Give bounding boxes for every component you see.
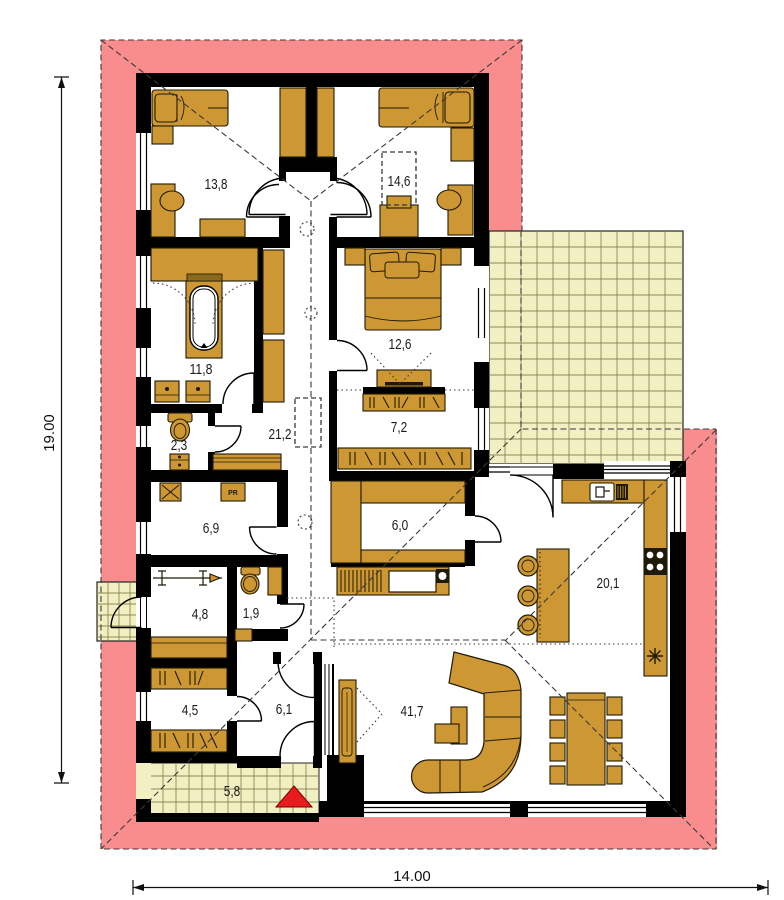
svg-text:4,8: 4,8 bbox=[192, 607, 209, 623]
svg-text:7,2: 7,2 bbox=[391, 420, 408, 436]
svg-text:12,6: 12,6 bbox=[389, 337, 412, 353]
svg-text:6,0: 6,0 bbox=[392, 518, 409, 534]
svg-text:1,9: 1,9 bbox=[243, 606, 260, 622]
svg-text:20,1: 20,1 bbox=[597, 576, 620, 592]
svg-text:19.00: 19.00 bbox=[41, 414, 58, 452]
svg-text:PR: PR bbox=[228, 490, 238, 497]
svg-text:6,9: 6,9 bbox=[203, 521, 220, 537]
svg-text:11,8: 11,8 bbox=[190, 362, 213, 378]
svg-text:4,5: 4,5 bbox=[182, 703, 199, 719]
svg-text:14.00: 14.00 bbox=[393, 868, 431, 885]
svg-text:21,2: 21,2 bbox=[269, 427, 292, 443]
svg-text:2,3: 2,3 bbox=[171, 438, 188, 454]
svg-text:13,8: 13,8 bbox=[205, 177, 228, 193]
svg-text:14,6: 14,6 bbox=[388, 174, 411, 190]
svg-text:41,7: 41,7 bbox=[401, 704, 424, 720]
svg-text:6,1: 6,1 bbox=[276, 702, 293, 718]
svg-text:5,8: 5,8 bbox=[224, 784, 241, 800]
